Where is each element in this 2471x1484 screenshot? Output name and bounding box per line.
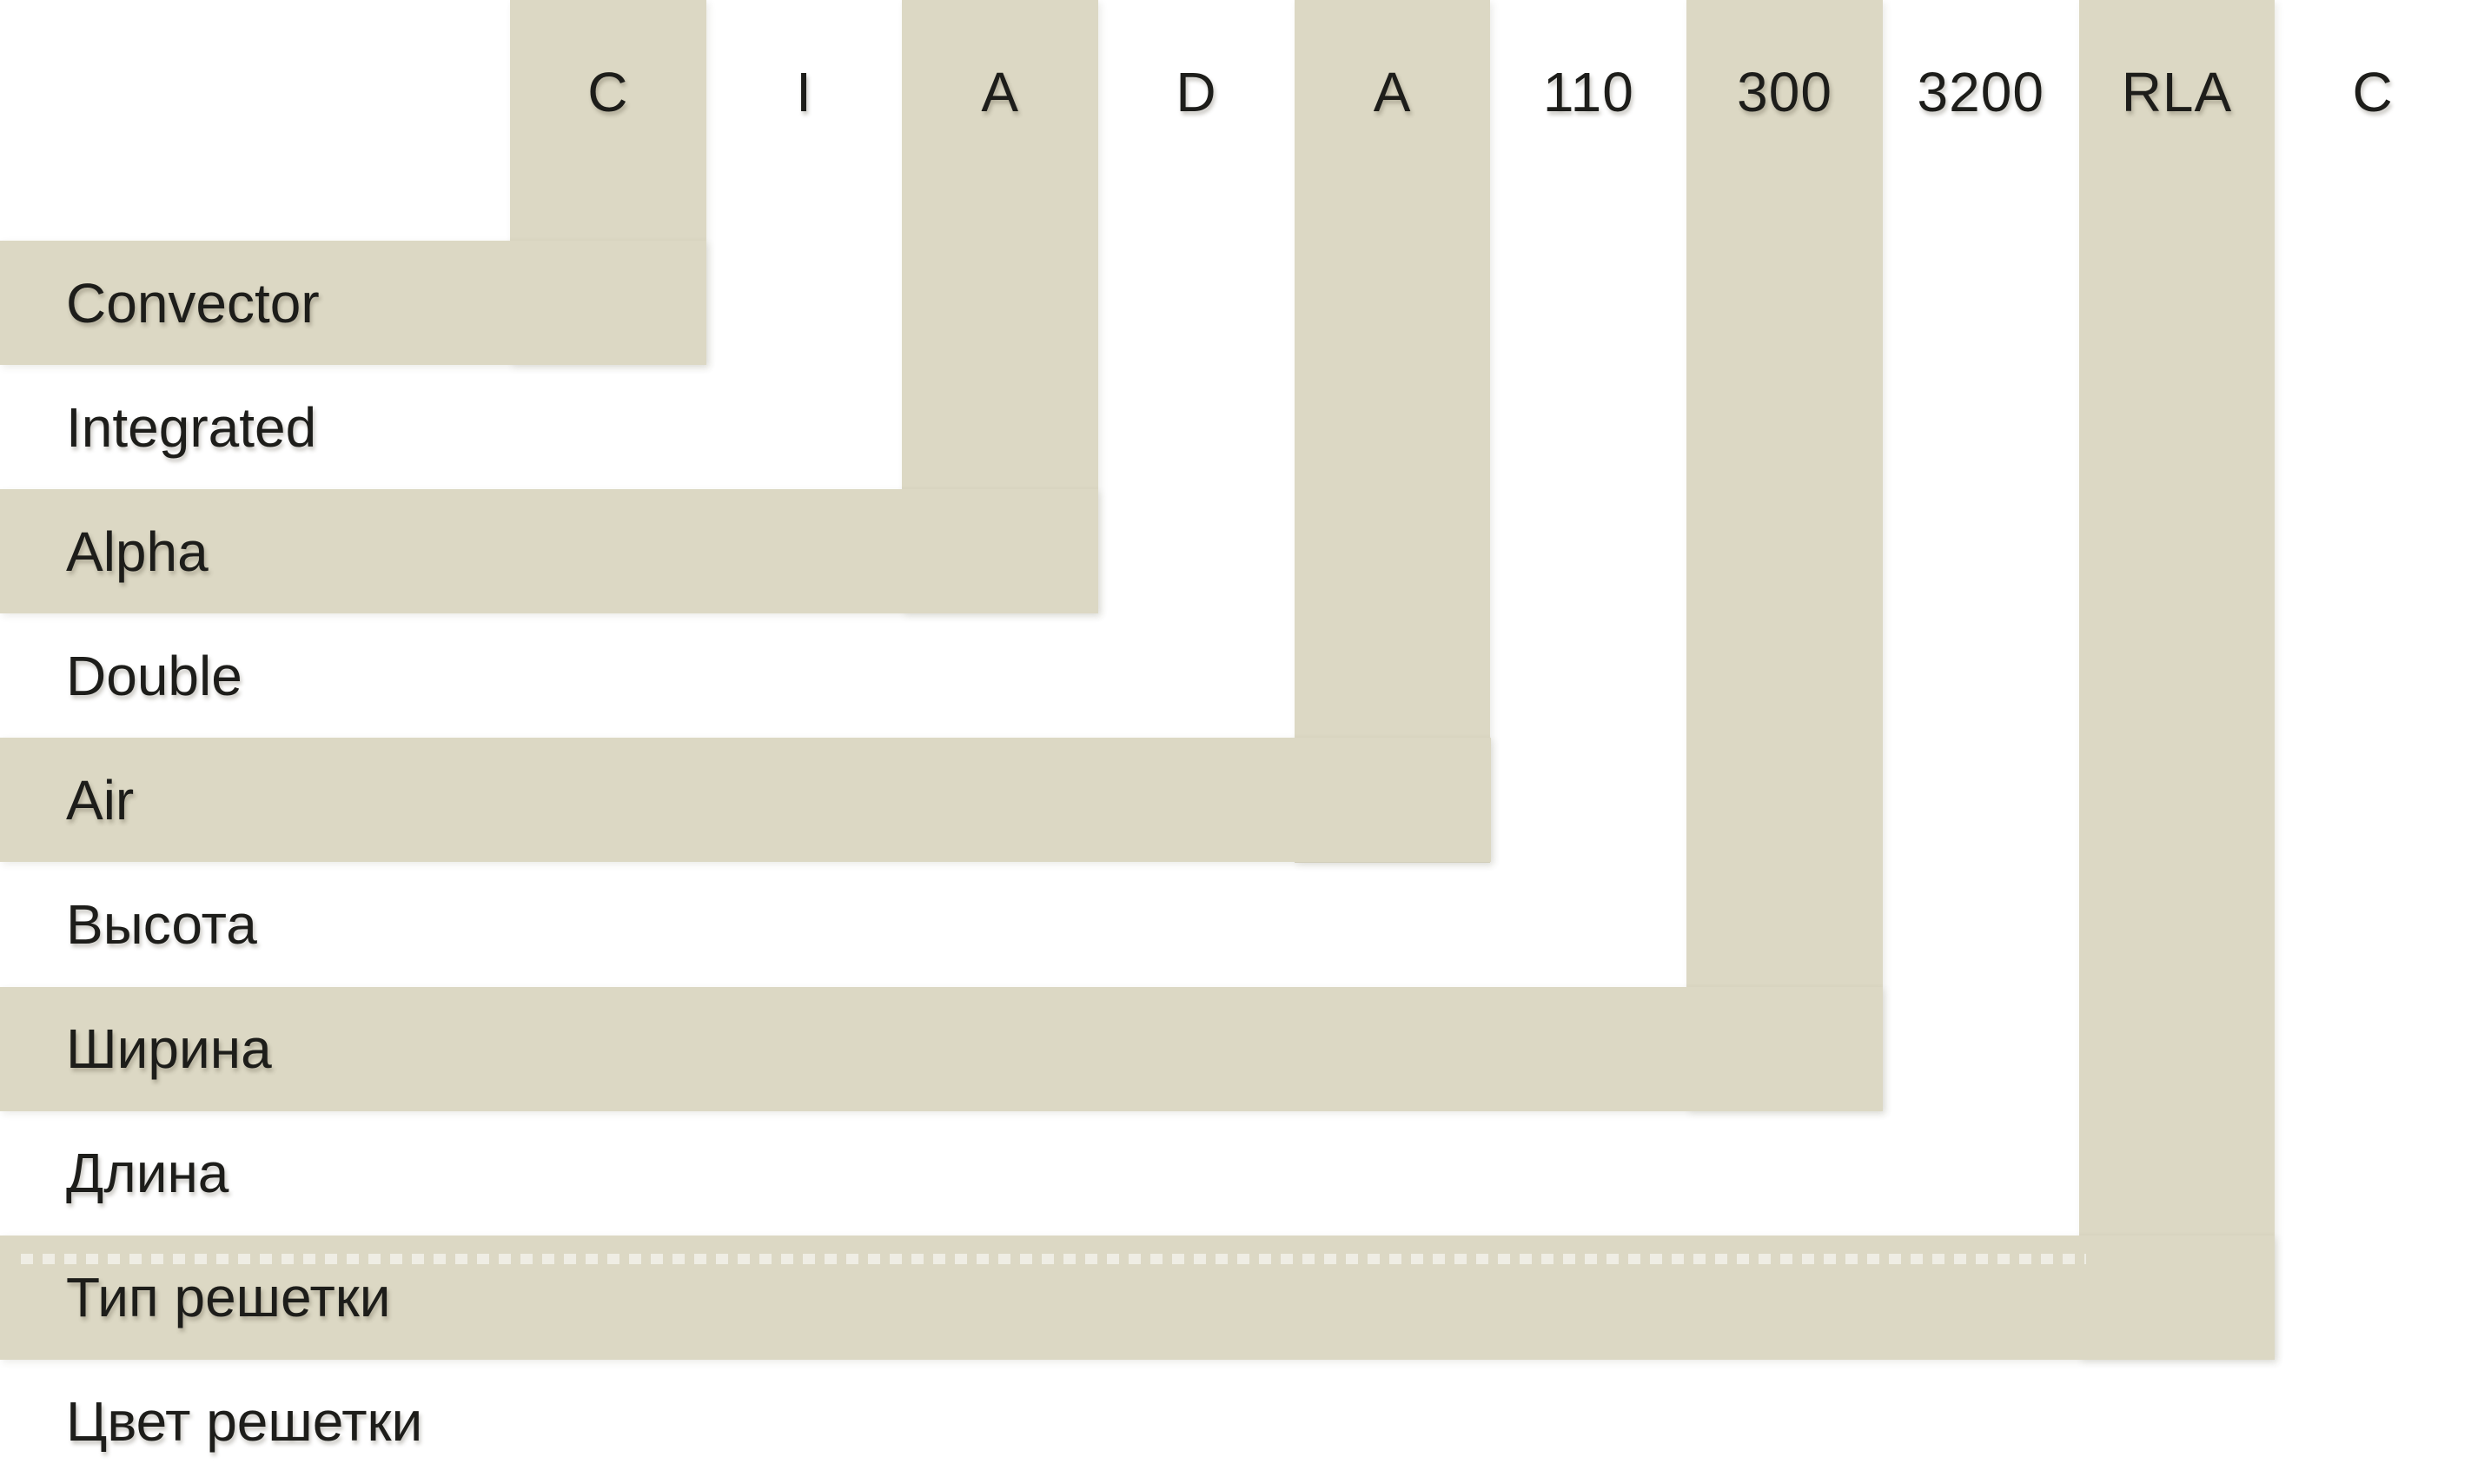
label-cell: Длина <box>0 1111 1216 1236</box>
code-cell: 300 <box>1686 0 1883 184</box>
code-cell: RLA <box>2079 0 2276 184</box>
code-cell: A <box>902 0 1098 184</box>
label-cell: Integrated <box>0 365 1216 489</box>
code-cell: A <box>1295 0 1491 184</box>
label-cell: Alpha <box>0 489 1216 613</box>
label-cell: Тип решетки <box>0 1236 1216 1360</box>
product-code-diagram: CConvectorIIntegratedAAlphaDDoubleAAir11… <box>0 0 2471 1484</box>
label-cell: Ширина <box>0 987 1216 1111</box>
label-cell: Air <box>0 738 1216 862</box>
code-cell: I <box>706 0 903 184</box>
code-cell: C <box>510 0 706 184</box>
label-cell: Высота <box>0 863 1216 987</box>
code-cell: 110 <box>1491 0 1687 184</box>
code-cell: C <box>2275 0 2471 184</box>
code-cell: 3200 <box>1883 0 2079 184</box>
label-cell: Convector <box>0 241 1216 365</box>
label-cell: Цвет решетки <box>0 1360 1216 1484</box>
code-cell: D <box>1098 0 1295 184</box>
code-column-band <box>2079 0 2276 1360</box>
label-cell: Double <box>0 613 1216 738</box>
